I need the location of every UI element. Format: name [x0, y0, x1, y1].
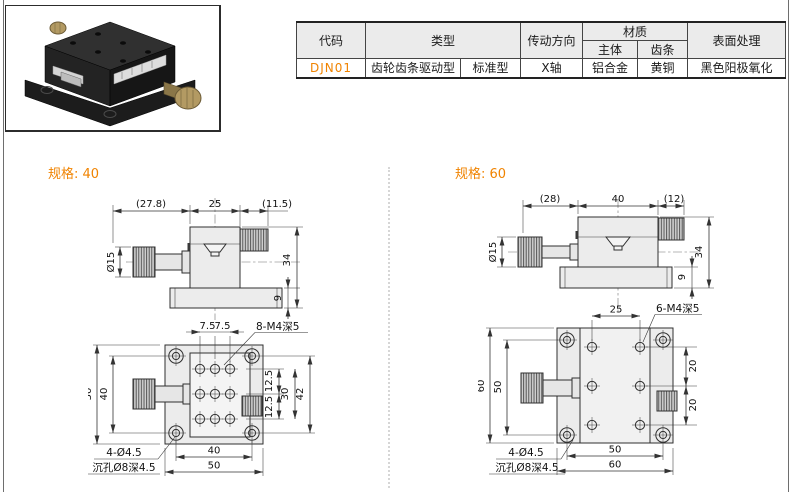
- spec40-drawing: (27.8) 25 (11.5) Ø15 34 9: [88, 193, 342, 483]
- brass-knob: [175, 87, 201, 109]
- dim-label: 50: [609, 445, 622, 456]
- dim-label: (27.8): [136, 199, 166, 210]
- spec40-top-view: 7.5 7.5 8-M4深5 50 40 12.5 12.5 30 42: [88, 321, 315, 476]
- dim-label: 60: [609, 460, 622, 471]
- dim-label: 12.5: [264, 370, 275, 392]
- callout-label: 沉孔Ø8深4.5: [495, 461, 558, 474]
- dim-label: (11.5): [262, 199, 292, 210]
- left-knob: [521, 373, 543, 403]
- dim-label: 25: [209, 199, 222, 210]
- dim-label: 20: [688, 399, 699, 412]
- cell-code: DJN01: [297, 59, 366, 78]
- section-divider: [388, 167, 390, 488]
- spec-table: 代码 类型 传动方向 材质 表面处理 主体 齿条 DJN01 齿轮齿条驱动型 标…: [296, 21, 786, 79]
- dim-label: (12): [664, 194, 685, 205]
- dim-label: 40: [99, 388, 110, 401]
- dim-label: 20: [688, 360, 699, 373]
- product-photo-box: [5, 5, 221, 132]
- spec40-section-label: 规格: 40: [48, 163, 99, 182]
- header-direction: 传动方向: [521, 22, 583, 59]
- callout-label: 6-M4深5: [656, 303, 699, 315]
- dim-label: 25: [610, 305, 623, 316]
- left-knob: [133, 247, 155, 277]
- stage-illustration: [25, 22, 201, 126]
- dim-label: 50: [493, 381, 504, 394]
- dim-label: (28): [540, 194, 561, 205]
- rear-brass-knob: [50, 22, 66, 34]
- header-material: 材质: [583, 22, 688, 41]
- left-knob: [133, 379, 155, 409]
- dim-label: 12.5: [264, 396, 275, 418]
- dim-label: 60: [478, 380, 487, 393]
- callout-label: 4-Ø4.5: [508, 447, 543, 459]
- dim-label: 42: [295, 388, 306, 401]
- dim-label: 7.5: [215, 321, 231, 332]
- header-material-main: 主体: [583, 41, 638, 59]
- dim-label: 40: [612, 194, 625, 205]
- spec60-drawing: (28) 40 (12) Ø15 34 9: [478, 193, 726, 483]
- product-photo: [6, 6, 220, 129]
- spec40-side-view: (27.8) 25 (11.5) Ø15 34 9: [105, 198, 303, 320]
- spec60-side-view: (28) 40 (12) Ø15 34 9: [487, 194, 714, 312]
- header-surface: 表面处理: [688, 22, 786, 59]
- cell-type2: 标准型: [461, 59, 521, 78]
- dim-label: 34: [282, 254, 293, 267]
- header-type: 类型: [366, 22, 521, 59]
- spec60-top-view: 25 6-M4深5 60 50 20 20 50 60 4-Ø4.5 沉孔Ø8深…: [478, 303, 702, 475]
- right-knob: [240, 229, 268, 251]
- callout-label: 8-M4深5: [256, 321, 299, 333]
- cell-material-rack: 黄铜: [638, 59, 688, 78]
- right-knob: [658, 218, 684, 240]
- right-knob: [657, 391, 677, 411]
- cell-type1: 齿轮齿条驱动型: [366, 59, 461, 78]
- header-code: 代码: [297, 22, 366, 59]
- spec60-section-label: 规格: 60: [455, 163, 506, 182]
- cell-surface: 黑色阳极氧化: [688, 59, 786, 78]
- callout-label: 4-Ø4.5: [106, 447, 141, 459]
- dim-label: 50: [88, 388, 94, 401]
- dim-label: 40: [208, 446, 221, 457]
- dim-label: 34: [694, 246, 705, 259]
- left-knob: [518, 237, 542, 267]
- dim-label: 50: [208, 461, 221, 472]
- cell-direction: X轴: [521, 59, 583, 78]
- dim-label: Ø15: [487, 242, 499, 263]
- callout-label: 沉孔Ø8深4.5: [92, 461, 155, 474]
- dim-label: 30: [280, 388, 291, 401]
- cell-material-main: 铝合金: [583, 59, 638, 78]
- right-knob: [242, 396, 262, 416]
- dim-label: 9: [273, 295, 284, 301]
- dim-label: Ø15: [105, 252, 117, 273]
- dim-label: 9: [677, 274, 688, 280]
- dim-label: 7.5: [200, 321, 216, 332]
- header-material-rack: 齿条: [638, 41, 688, 59]
